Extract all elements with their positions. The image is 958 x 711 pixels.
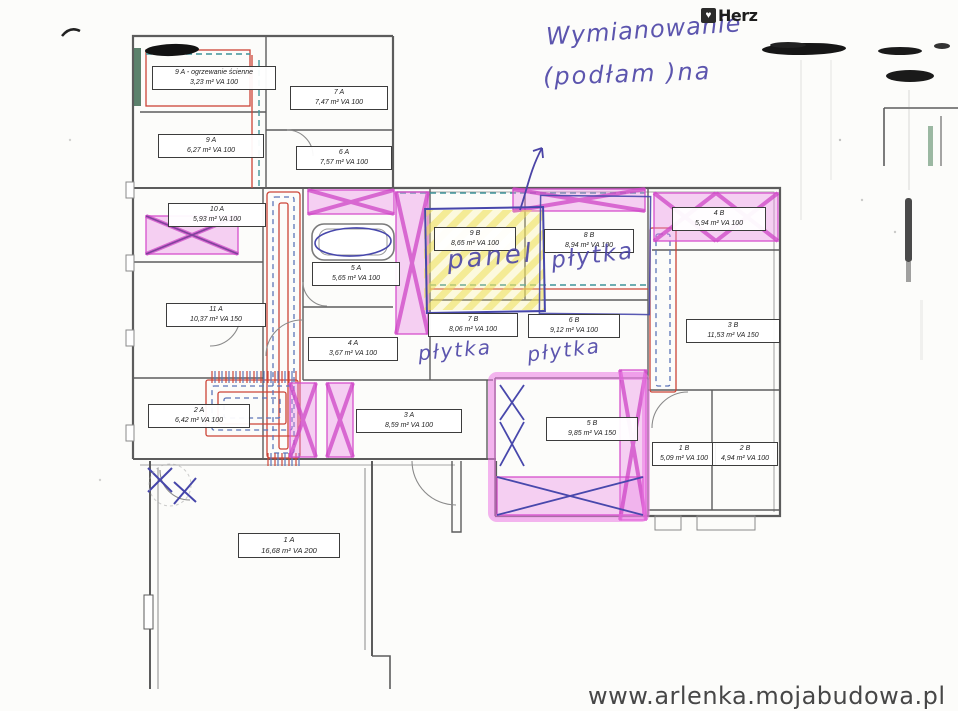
- room-label-1b: 1 B 5,09 m² VA 100: [652, 442, 716, 466]
- room-area: 11,53 m² VA 150: [689, 331, 777, 341]
- room-label-10a: 10 A 5,93 m² VA 100: [168, 203, 266, 227]
- room-label-11a: 11 A 10,37 m² VA 150: [166, 303, 266, 327]
- room-id: 2 B: [715, 444, 775, 454]
- room-area: 3,23 m² VA 100: [155, 78, 273, 88]
- room-id: 4 B: [675, 209, 763, 219]
- room-id: 9 A - ogrzewanie ścienne: [155, 68, 273, 78]
- room-label-4a: 4 A 3,67 m² VA 100: [308, 337, 398, 361]
- room-area: 5,09 m² VA 100: [655, 454, 713, 464]
- herz-logo-text: Herz: [718, 6, 757, 25]
- watermark-url: www.arlenka.mojabudowa.pl: [588, 682, 946, 710]
- room-area: 9,85 m² VA 150: [549, 429, 635, 439]
- room-label-2a: 2 A 6,42 m² VA 100: [148, 404, 250, 428]
- room-label-5a: 5 A 5,65 m² VA 100: [312, 262, 400, 286]
- room-area: 8,59 m² VA 100: [359, 421, 459, 431]
- room-area: 5,94 m² VA 100: [675, 219, 763, 229]
- heart-icon: ♥: [701, 8, 716, 23]
- room-label-4b: 4 B 5,94 m² VA 100: [672, 207, 766, 231]
- room-id: 4 A: [311, 339, 395, 349]
- wall-heating-strip: [134, 48, 141, 106]
- room-label-9a: 9 A 6,27 m² VA 100: [158, 134, 264, 158]
- room-label-1a: 1 A 16,68 m² VA 200: [238, 533, 340, 558]
- room-id: 7 A: [293, 88, 385, 98]
- wall-heating-strip-right: [928, 126, 933, 166]
- room-area: 9,12 m² VA 100: [531, 326, 617, 336]
- room-label-7a: 7 A 7,47 m² VA 100: [290, 86, 388, 110]
- room-id: 7 B: [431, 315, 515, 325]
- room-label-9a-wall: 9 A - ogrzewanie ścienne 3,23 m² VA 100: [152, 66, 276, 90]
- room-label-6b: 6 B 9,12 m² VA 100: [528, 314, 620, 338]
- room-label-2b: 2 B 4,94 m² VA 100: [712, 442, 778, 466]
- room-id: 9 A: [161, 136, 261, 146]
- room-area: 8,06 m² VA 100: [431, 325, 515, 335]
- herz-logo: ♥ Herz: [701, 6, 757, 25]
- room-id: 1 A: [241, 535, 337, 546]
- handwritten-note-line2: (podłam )na: [543, 57, 712, 91]
- room-label-7b: 7 B 8,06 m² VA 100: [428, 313, 518, 337]
- room-id: 9 B: [437, 229, 513, 239]
- room-area: 7,47 m² VA 100: [293, 98, 385, 108]
- room-area: 16,68 m² VA 200: [241, 546, 337, 557]
- room-label-3a: 3 A 8,59 m² VA 100: [356, 409, 462, 433]
- room-id: 11 A: [169, 305, 263, 315]
- pipe-comb-hatch: [210, 371, 298, 383]
- room-area: 10,37 m² VA 150: [169, 315, 263, 325]
- room-id: 2 A: [151, 406, 247, 416]
- room-area: 5,65 m² VA 100: [315, 274, 397, 284]
- room-id: 10 A: [171, 205, 263, 215]
- room-id: 5 A: [315, 264, 397, 274]
- room-label-3b: 3 B 11,53 m² VA 150: [686, 319, 780, 343]
- bathtub-icon: [312, 224, 394, 260]
- room-id: 6 A: [299, 148, 389, 158]
- room-label-5b: 5 B 9,85 m² VA 150: [546, 417, 638, 441]
- room-area: 3,67 m² VA 100: [311, 349, 395, 359]
- room-id: 3 B: [689, 321, 777, 331]
- room-id: 6 B: [531, 316, 617, 326]
- scanned-floorplan-page: 9 A - ogrzewanie ścienne 3,23 m² VA 100 …: [0, 0, 958, 711]
- room-area: 5,93 m² VA 100: [171, 215, 263, 225]
- room-area: 7,57 m² VA 100: [299, 158, 389, 168]
- room-id: 3 A: [359, 411, 459, 421]
- room-area: 4,94 m² VA 100: [715, 454, 775, 464]
- room-area: 6,42 m² VA 100: [151, 416, 247, 426]
- room-id: 1 B: [655, 444, 713, 454]
- room-area: 6,27 m² VA 100: [161, 146, 261, 156]
- room-label-6a: 6 A 7,57 m² VA 100: [296, 146, 392, 170]
- room-id: 5 B: [549, 419, 635, 429]
